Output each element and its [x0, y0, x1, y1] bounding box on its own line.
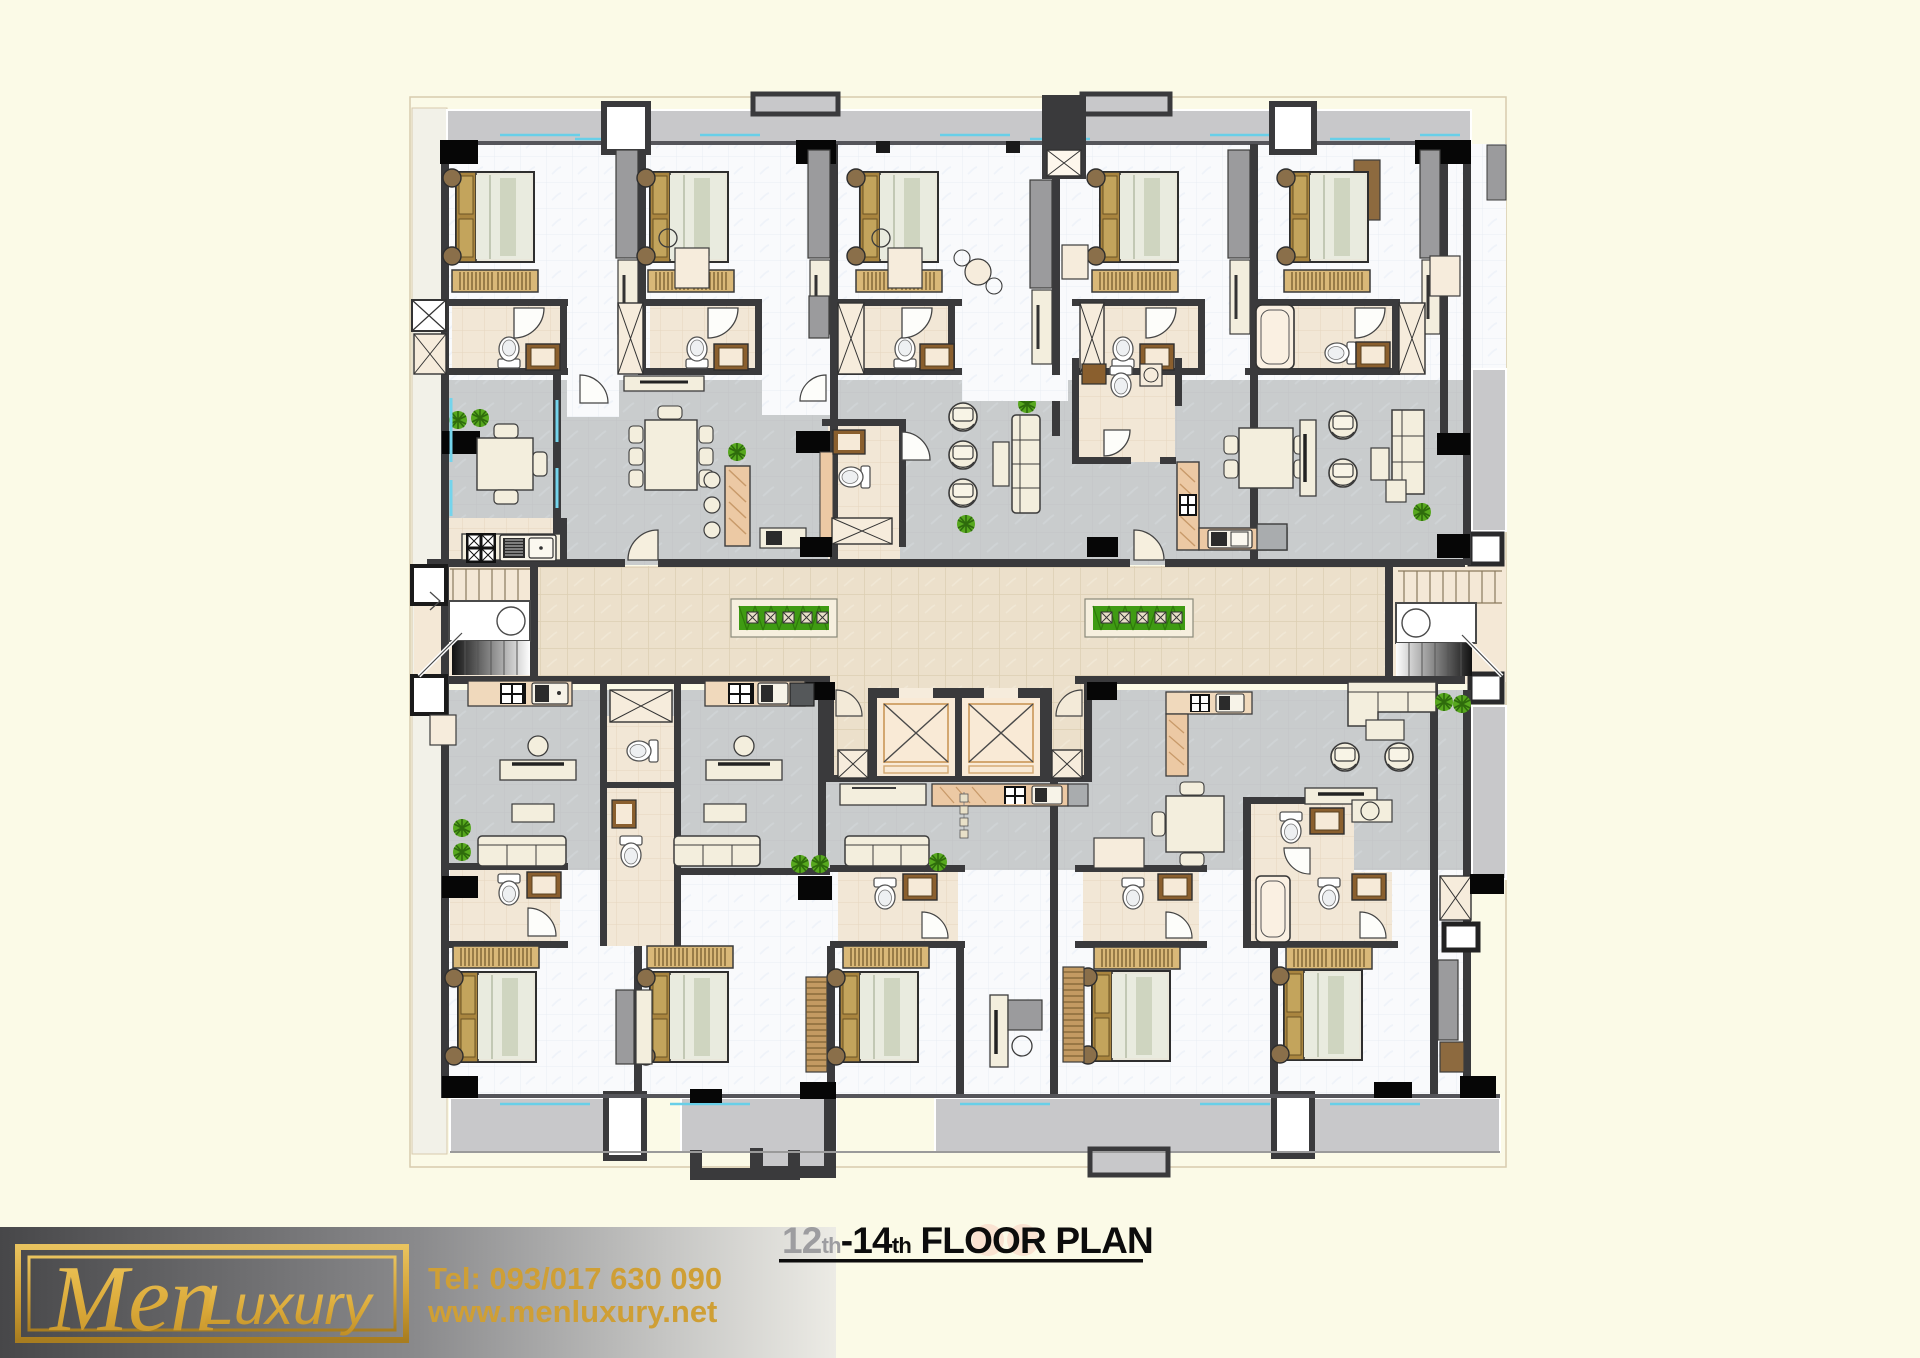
svg-text:Men: Men [48, 1247, 217, 1351]
svg-text:Luxury: Luxury [203, 1273, 374, 1336]
svg-text:www.menluxury.net: www.menluxury.net [427, 1294, 717, 1329]
svg-text:Tel: 093/017 630 090: Tel: 093/017 630 090 [428, 1261, 722, 1296]
